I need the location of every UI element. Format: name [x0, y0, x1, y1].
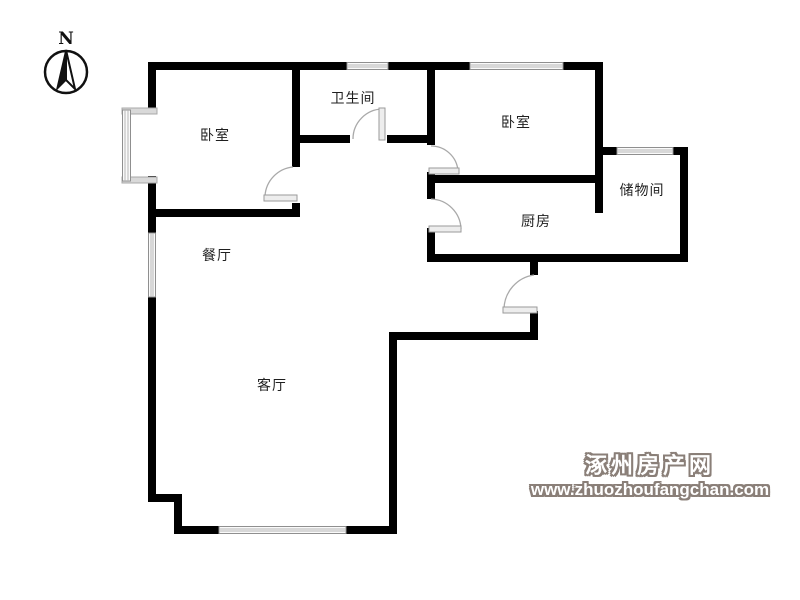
- watermark-site-url: www.zhuozhoufangchan.com: [520, 481, 780, 500]
- wall-bedroom1-bottom: [148, 209, 300, 217]
- window-bathroom-top-icon: [347, 63, 388, 70]
- wall-bathroom-bottom-left: [296, 135, 350, 143]
- wall-kitchen-top: [430, 175, 603, 183]
- watermark: 涿州房产网 www.zhuozhoufangchan.com: [520, 454, 780, 500]
- wall-left-lower: [148, 296, 156, 502]
- wall-living-top-right: [389, 332, 538, 340]
- compass-north-label: N: [58, 29, 74, 49]
- wall-bathroom-bottom-right: [387, 135, 435, 143]
- door-kitchen-icon: [429, 199, 461, 232]
- wall-living-right: [389, 332, 397, 534]
- window-storage-top-icon: [617, 148, 673, 155]
- window-bay-bedroom1-icon: [122, 108, 157, 183]
- wall-left-upper: [148, 62, 156, 114]
- wall-hall-vertical-2: [427, 172, 435, 199]
- room-label-bedroom-1: 卧室: [200, 125, 230, 145]
- watermark-site-name: 涿州房产网: [520, 454, 780, 478]
- floorplan-drawing: [0, 0, 800, 600]
- room-label-dining: 餐厅: [202, 245, 232, 265]
- wall-hall-vertical-1: [427, 62, 435, 145]
- door-bedroom1-icon: [264, 167, 297, 201]
- wall-storage-right: [680, 147, 688, 262]
- door-kitchen-living-icon: [503, 275, 537, 313]
- room-label-bathroom: 卫生间: [331, 88, 376, 108]
- door-bedroom2-icon: [429, 146, 459, 174]
- wall-bedroom1-right-upper: [292, 62, 300, 167]
- compass-needle-dark: [57, 50, 66, 89]
- floorplan-page: N 卧室 卫生间 卧室 储物间 厨房 餐厅 客厅 涿州房产网 www.zhuoz…: [0, 0, 800, 600]
- window-dining-left-icon: [149, 233, 156, 297]
- wall-bedroom2-right: [595, 62, 603, 213]
- window-bedroom2-top-icon: [470, 63, 563, 70]
- room-label-living: 客厅: [257, 375, 287, 395]
- wall-left-mid: [148, 176, 156, 234]
- wall-kitchen-bottom: [430, 254, 688, 262]
- window-living-bottom-icon: [219, 527, 346, 534]
- wall-bottom-left: [174, 526, 220, 534]
- door-bathroom-icon: [353, 108, 385, 140]
- room-label-storage: 储物间: [620, 180, 665, 200]
- compass-needle-light: [66, 50, 75, 89]
- room-label-bedroom-2: 卧室: [501, 112, 531, 132]
- room-label-kitchen: 厨房: [521, 211, 551, 231]
- wall-kitchen-living-lower: [530, 311, 538, 340]
- wall-hall-vertical-3: [427, 228, 435, 262]
- compass-icon: [45, 50, 87, 93]
